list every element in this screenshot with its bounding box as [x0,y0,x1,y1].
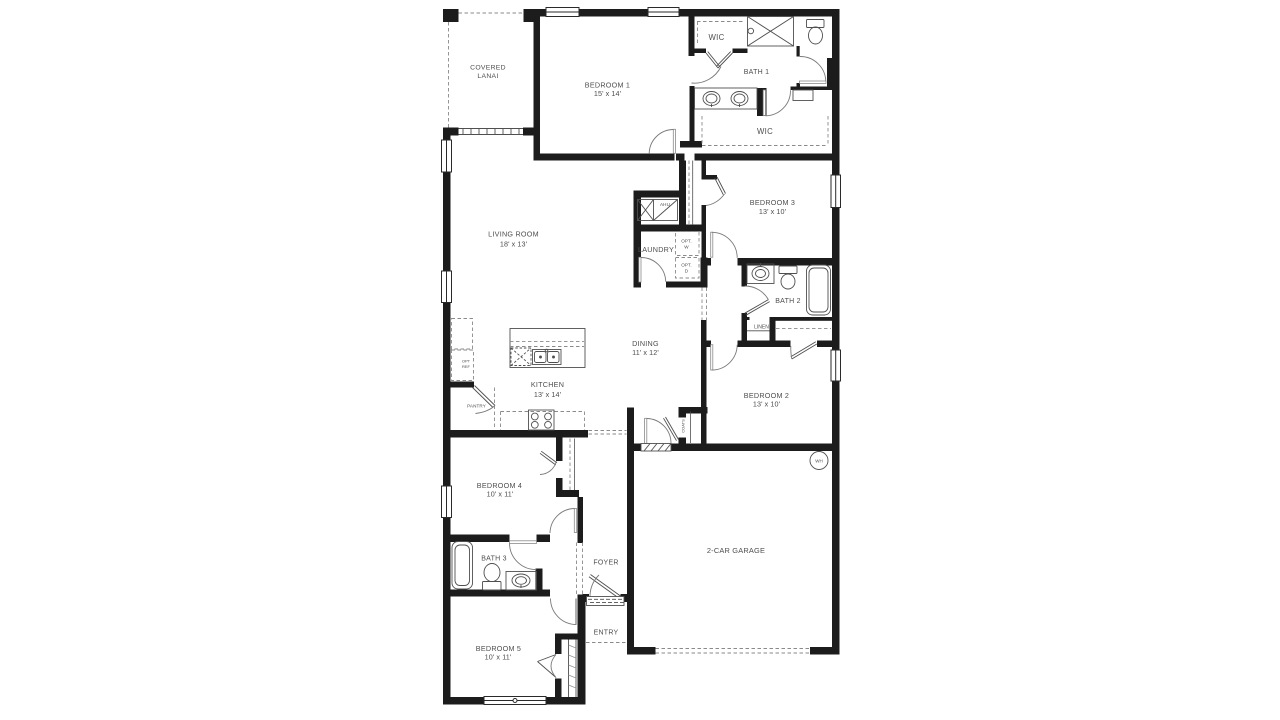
svg-text:15' x 14': 15' x 14' [594,89,622,98]
svg-text:13' x 10': 13' x 10' [753,400,781,409]
svg-text:OPT.: OPT. [681,263,692,268]
svg-text:DINING: DINING [632,339,659,348]
svg-text:10' x 11': 10' x 11' [485,653,512,662]
svg-text:18' x 13': 18' x 13' [500,240,528,249]
svg-text:WIC: WIC [708,33,724,42]
svg-text:COVERED: COVERED [470,65,506,72]
svg-text:13' x 10': 13' x 10' [759,207,787,216]
svg-text:LAUNDRY: LAUNDRY [638,245,674,254]
svg-text:13' x 14': 13' x 14' [534,390,562,399]
svg-text:BATH 3: BATH 3 [481,556,507,563]
svg-text:BATH 1: BATH 1 [744,69,770,76]
svg-text:FOYER: FOYER [593,560,618,567]
svg-text:LIVING ROOM: LIVING ROOM [488,230,539,239]
svg-text:LINEN: LINEN [754,325,769,331]
svg-text:KITCHEN: KITCHEN [531,380,564,389]
svg-text:11' x 12': 11' x 12' [632,348,659,357]
svg-text:COATS: COATS [681,419,686,433]
svg-text:D: D [685,269,689,274]
svg-text:OPT: OPT [462,359,471,364]
svg-text:REF: REF [462,364,471,369]
svg-text:BEDROOM 3: BEDROOM 3 [750,198,795,207]
svg-text:OPT.: OPT. [681,239,692,244]
svg-text:WH: WH [815,459,823,464]
svg-text:WIC: WIC [757,127,773,136]
svg-text:W: W [684,245,689,250]
svg-text:BATH 2: BATH 2 [775,298,801,305]
svg-text:2-CAR GARAGE: 2-CAR GARAGE [707,546,765,555]
svg-text:LANAI: LANAI [477,73,498,80]
svg-text:AHU: AHU [660,202,670,207]
svg-text:PANTRY: PANTRY [467,404,486,409]
svg-text:ENTRY: ENTRY [594,630,619,637]
svg-text:10' x 11': 10' x 11' [487,490,514,499]
